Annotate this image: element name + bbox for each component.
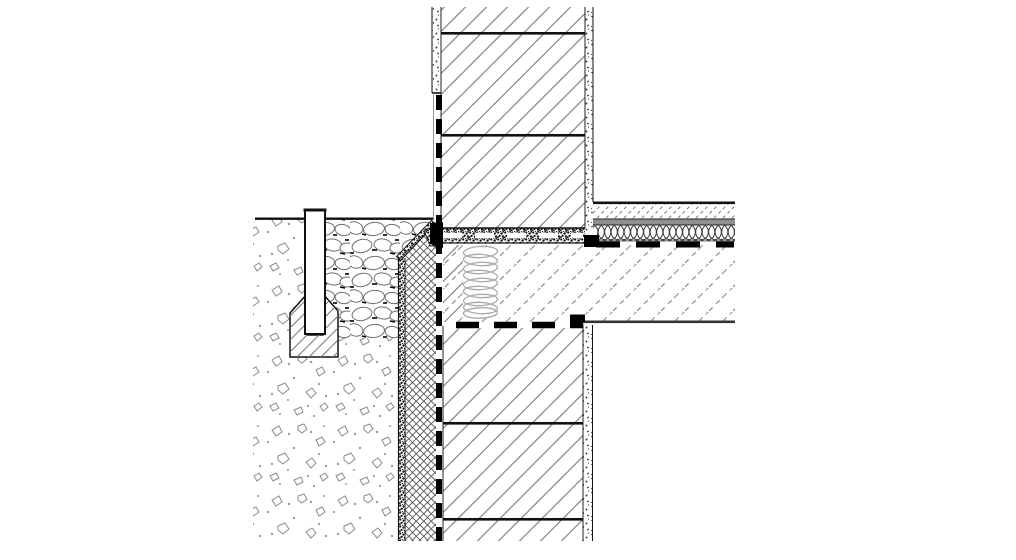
pipe-top-cap bbox=[304, 209, 327, 212]
masonry-joint bbox=[441, 134, 585, 137]
floor-screed bbox=[593, 204, 735, 219]
detail-drawing bbox=[0, 0, 1016, 560]
masonry-joint bbox=[443, 518, 583, 521]
exterior-plaster bbox=[432, 7, 441, 93]
masonry-wall-lower bbox=[443, 324, 583, 541]
masonry-joint bbox=[441, 32, 585, 35]
floor-build-up bbox=[593, 202, 735, 245]
interior-plaster-lower bbox=[583, 325, 593, 541]
perimeter-insulation-board bbox=[405, 222, 436, 541]
masonry-wall-upper bbox=[441, 7, 585, 228]
protection-layer-strip bbox=[399, 258, 406, 541]
slab-bottom-line bbox=[583, 321, 735, 324]
interior-plaster-upper bbox=[585, 7, 593, 240]
separation-layer bbox=[593, 219, 735, 225]
floor-top-line bbox=[593, 202, 735, 205]
impact-sound-insulation bbox=[593, 225, 735, 241]
membrane-junction-exterior bbox=[430, 222, 443, 248]
slab-edge-masonry-strip bbox=[443, 245, 463, 322]
membrane-junction-interior bbox=[584, 235, 599, 247]
ground-line bbox=[255, 218, 433, 220]
membrane-step bbox=[570, 315, 585, 323]
masonry-joint bbox=[443, 422, 583, 425]
slab-edge-insulation-coil bbox=[463, 246, 498, 319]
inspection-pipe bbox=[304, 209, 327, 335]
bed-joint-seal-band bbox=[424, 224, 585, 246]
cad-detail-canvas bbox=[0, 0, 1016, 560]
